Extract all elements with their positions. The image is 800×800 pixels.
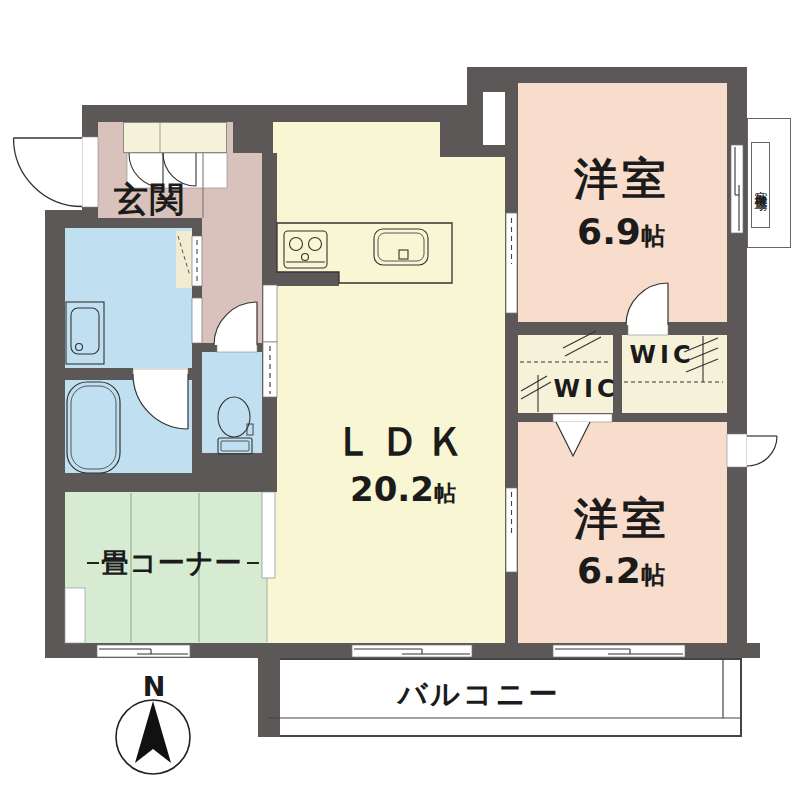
wall-segment bbox=[258, 658, 280, 737]
wall-segment bbox=[82, 105, 98, 218]
washroom-storage bbox=[176, 231, 192, 288]
ldk-label: ＬＤＫ bbox=[334, 421, 472, 461]
wall-segment bbox=[192, 286, 202, 298]
floor-plan: 玄関 ＬＤＫ 20.2帖 洋室 6.9帖 洋室 6.2帖 WIC WIC 畳コー… bbox=[0, 0, 800, 800]
bedroom69-size-unit: 帖 bbox=[641, 222, 665, 250]
wall-segment bbox=[440, 122, 467, 157]
wall-segment bbox=[505, 83, 518, 643]
tatami-label: 畳コーナー bbox=[101, 549, 242, 576]
ldk-size-number: 20.2 bbox=[350, 469, 434, 509]
wall-segment bbox=[505, 413, 727, 422]
wall-segment bbox=[233, 122, 273, 153]
bedroom62-label: 洋室 bbox=[574, 497, 670, 541]
room-washroom bbox=[63, 228, 192, 368]
wall-segment bbox=[483, 145, 505, 157]
bedroom62-size-unit: 帖 bbox=[641, 561, 665, 589]
wall-segment bbox=[45, 643, 760, 658]
wall-segment bbox=[188, 368, 202, 380]
wall-segment bbox=[82, 105, 467, 122]
wall-segment bbox=[467, 67, 747, 83]
ldk-size-unit: 帖 bbox=[434, 481, 456, 506]
room-ldk bbox=[267, 121, 505, 643]
wall-segment bbox=[202, 343, 217, 352]
wall-segment bbox=[45, 473, 277, 492]
wic-right-label: WIC bbox=[629, 343, 694, 367]
north-compass-icon bbox=[116, 700, 190, 774]
wall-segment bbox=[467, 83, 483, 157]
outdoor-unit-label: 室外機置場 bbox=[755, 180, 768, 190]
bedroom62-size-number: 6.2 bbox=[577, 550, 641, 591]
balcony-label: バルコニー bbox=[398, 680, 561, 709]
wall-segment bbox=[483, 83, 505, 92]
wall-segment bbox=[192, 343, 202, 453]
wall-segment bbox=[45, 210, 65, 658]
wall-segment bbox=[192, 228, 202, 236]
bedroom62-size-label: 6.2帖 bbox=[577, 553, 665, 589]
wic-left-label: WIC bbox=[553, 377, 618, 401]
north-label: N bbox=[143, 673, 166, 700]
wall-segment bbox=[98, 218, 202, 228]
shoe-cabinet bbox=[123, 122, 227, 153]
bedroom69-label: 洋室 bbox=[574, 157, 670, 201]
wall-segment bbox=[63, 368, 133, 380]
room-toilet bbox=[202, 352, 262, 453]
wall-segment bbox=[262, 153, 277, 473]
kitchen-half-wall bbox=[270, 272, 339, 286]
ldk-size-label: 20.2帖 bbox=[350, 472, 456, 506]
wall-segment bbox=[727, 67, 747, 658]
wall-segment bbox=[505, 322, 727, 335]
genkan-label: 玄関 bbox=[114, 182, 186, 216]
bedroom69-size-label: 6.9帖 bbox=[577, 214, 665, 250]
bedroom69-size-number: 6.9 bbox=[577, 211, 641, 252]
room-bathroom bbox=[63, 380, 192, 473]
room-hallway bbox=[202, 218, 262, 345]
